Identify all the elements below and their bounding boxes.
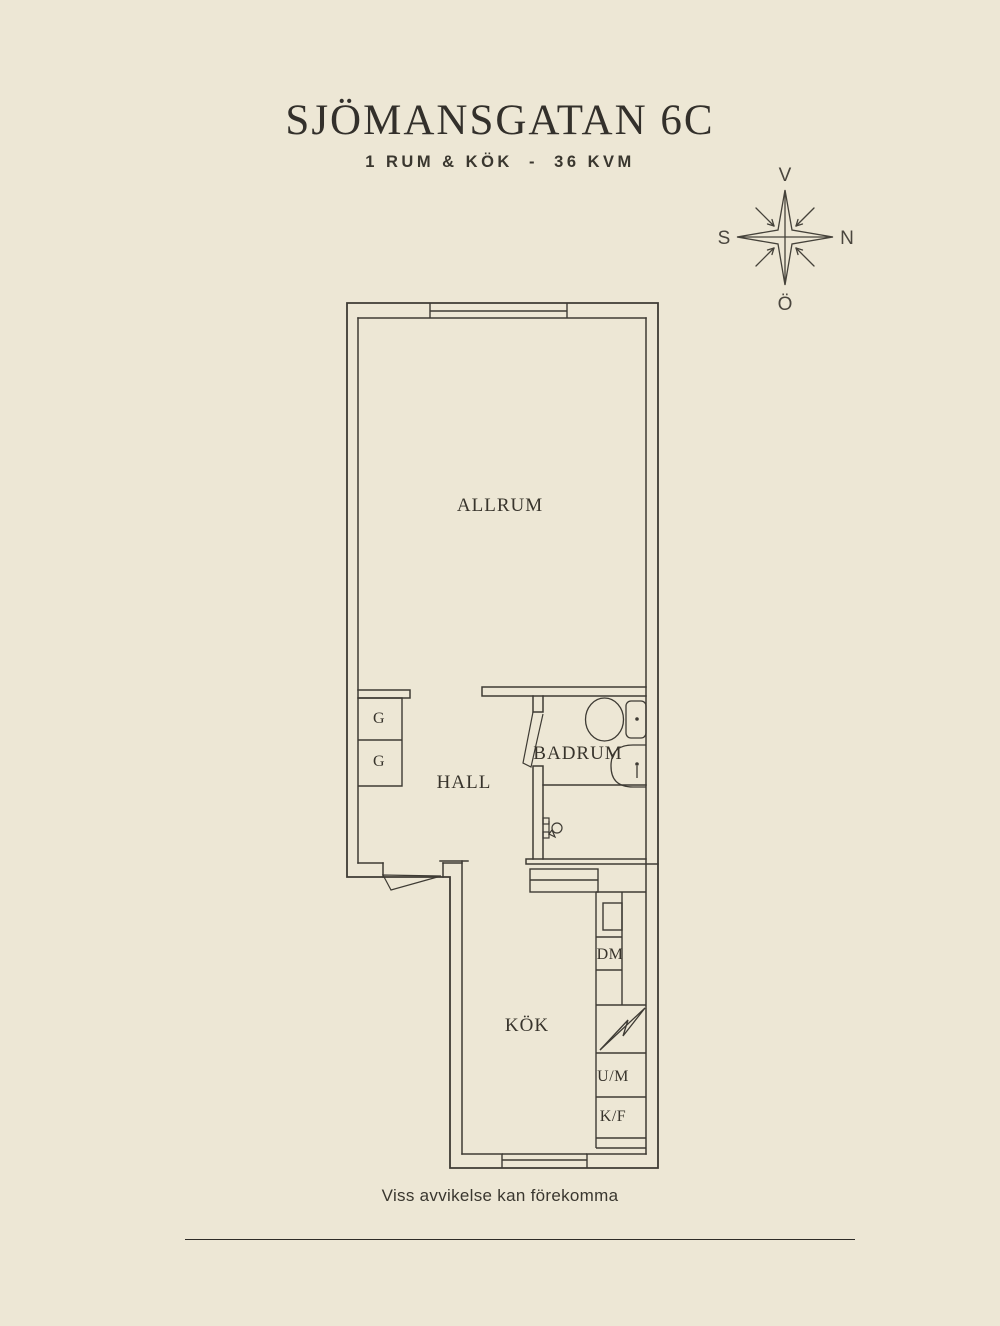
floor-plan: ALLRUM HALL BADRUM KÖK G G DM U/M K/F (0, 0, 1000, 1326)
fixture-label-closet-1: G (373, 710, 385, 728)
room-label-badrum: BADRUM (533, 743, 622, 765)
toilet-icon (586, 698, 647, 741)
floor-plan-drawing (0, 0, 1000, 1326)
floor-plan-page: SJÖMANSGATAN 6C 1 RUM & KÖK - 36 KVM V N… (0, 0, 1000, 1326)
fixture-label-dishwasher: DM (597, 946, 624, 964)
disclaimer-text: Viss avvikelse kan förekomma (0, 1186, 1000, 1206)
bottom-divider (185, 1239, 855, 1240)
room-label-kok: KÖK (505, 1015, 549, 1037)
fixture-label-fridge-freezer: K/F (600, 1108, 626, 1126)
kitchen-sink-icon (603, 903, 622, 930)
room-label-allrum: ALLRUM (457, 495, 543, 517)
kitchen-counter-top (530, 869, 598, 892)
room-label-hall: HALL (437, 772, 492, 794)
shower-icon (543, 818, 562, 838)
fixture-label-closet-2: G (373, 753, 385, 771)
window-bottom (502, 1154, 587, 1168)
fixture-label-oven-microwave: U/M (597, 1068, 629, 1086)
stove-icon (600, 1008, 645, 1050)
window-top (430, 303, 567, 318)
